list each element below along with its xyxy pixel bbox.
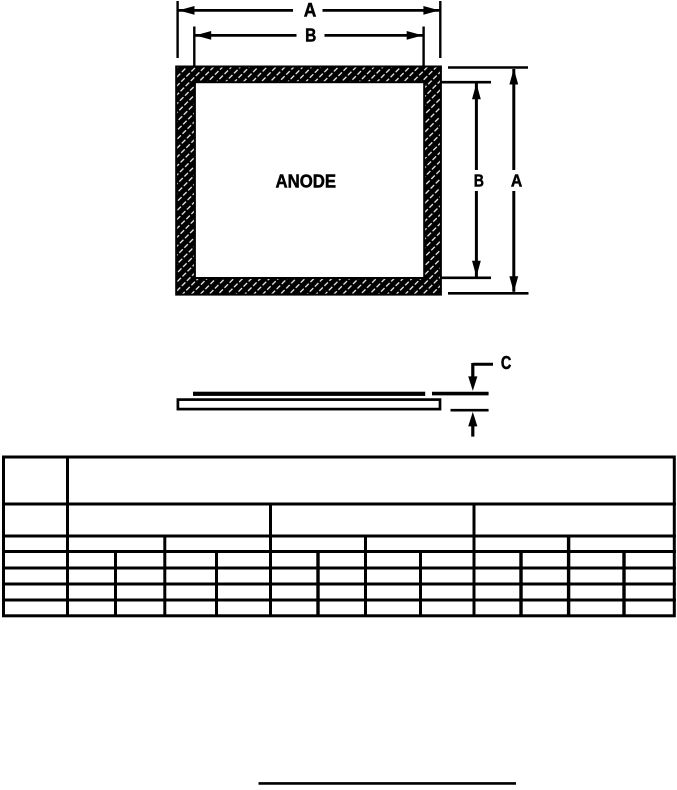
svg-text:ANODE: ANODE xyxy=(276,170,337,191)
svg-text:C: C xyxy=(501,353,511,373)
svg-text:A: A xyxy=(511,171,523,191)
svg-text:B: B xyxy=(305,26,316,46)
svg-text:A: A xyxy=(304,0,317,22)
svg-text:B: B xyxy=(474,171,484,191)
